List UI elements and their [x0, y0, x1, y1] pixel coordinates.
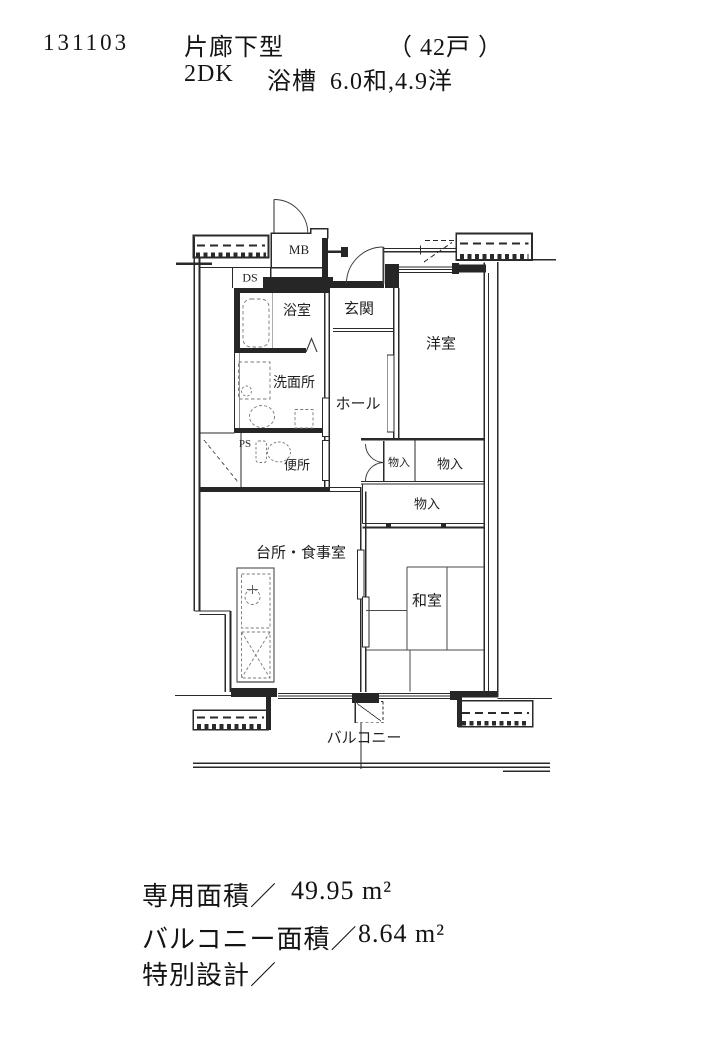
mb-door-arc [274, 200, 308, 234]
tatami-lines [366, 567, 484, 692]
room-label-closet-1: 物入 [388, 454, 410, 470]
room-label-entrance: 玄関 [344, 298, 374, 319]
bathtub-icon [243, 299, 269, 347]
room-label-pipe-space: PS [239, 438, 251, 450]
room-label-toilet: 便所 [284, 455, 310, 474]
washbasin-icon [250, 406, 275, 428]
closet-door-arc-upper [366, 444, 385, 463]
washing-machine-icon [239, 362, 271, 399]
room-label-kitchen-dining: 台所・食事室 [256, 542, 346, 563]
balcony-area-value: 8.64 m² [358, 919, 445, 949]
entrance-door-arc [346, 247, 383, 284]
room-label-hall: ホール [335, 393, 380, 414]
page: 131103 片廊下型 （ 42戸 ） 2DK 浴槽 6.0和,4.9洋 [0, 0, 719, 1038]
room-label-duct-space: DS [242, 271, 257, 286]
special-design-label: 特別設計／ [142, 955, 277, 992]
closet-door-arc-lower [366, 463, 385, 482]
balcony-area-label: バルコニー面積／ [142, 919, 357, 956]
area-value: 49.95 m² [291, 876, 392, 906]
room-label-closet-3: 物入 [414, 494, 440, 513]
toilet-icon [256, 441, 267, 463]
kitchen-counter-icon [237, 568, 274, 682]
room-label-bathroom: 浴室 [283, 300, 311, 320]
room-label-closet-2: 物入 [437, 454, 463, 473]
room-label-meter-box: MB [289, 242, 309, 258]
area-label: 専用面積／ [142, 876, 277, 913]
room-label-western-room: 洋室 [426, 333, 456, 354]
room-label-washroom: 洗面所 [273, 372, 315, 392]
room-label-japanese-room: 和室 [412, 590, 442, 611]
room-label-balcony: バルコニー [327, 727, 402, 748]
bath-folding-door [306, 339, 317, 353]
